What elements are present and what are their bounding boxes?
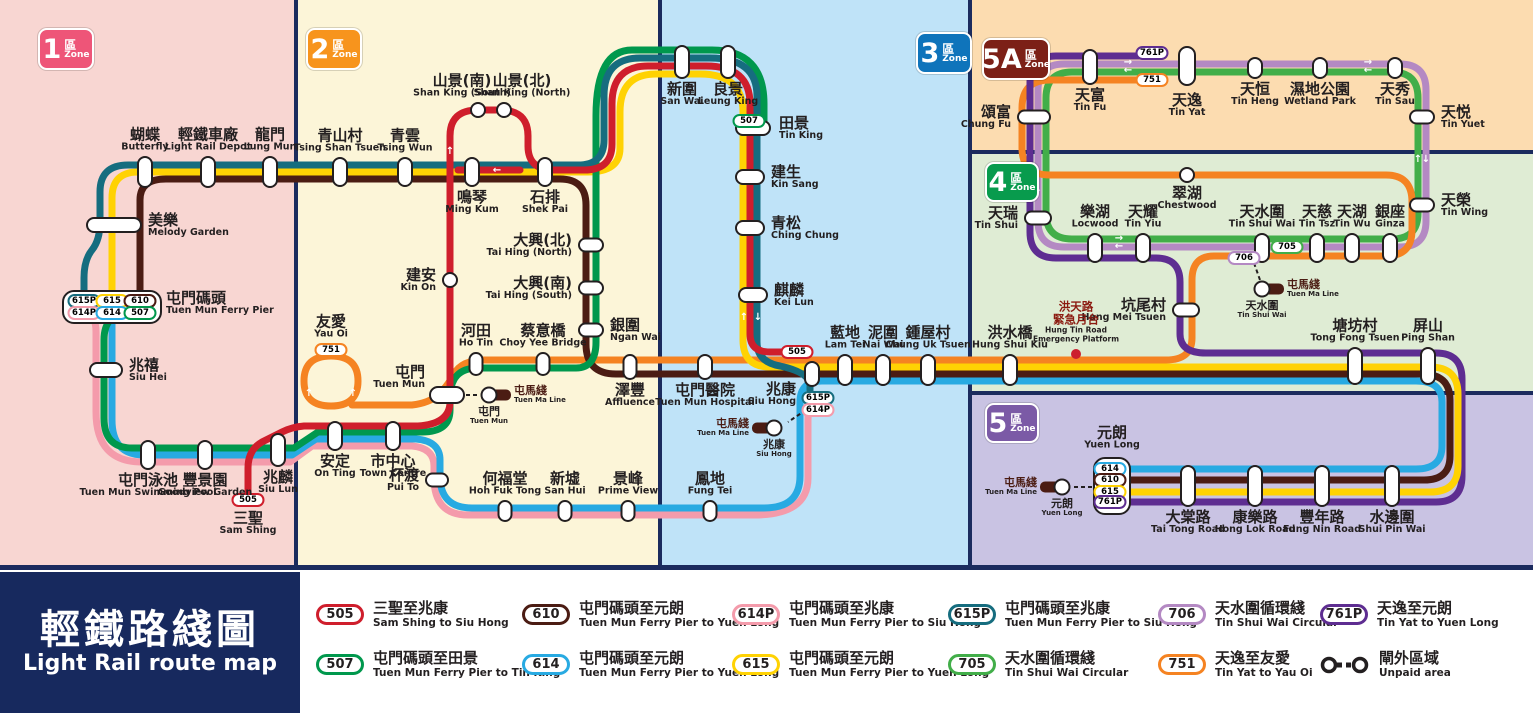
station-town-centre-marker xyxy=(385,421,401,451)
legend-route-751: 751 天逸至友愛Tin Yat to Yau Oi xyxy=(1158,650,1313,679)
station-tin-sau-label: 天秀Tin Sau xyxy=(1375,81,1415,107)
station-tuen-mun-label: 屯門Tuen Mun xyxy=(373,364,425,390)
map-title-zh: 輕鐵路綫圖 xyxy=(40,608,260,652)
station-siu-hei-label: 兆禧Siu Hei xyxy=(129,357,167,383)
station-ping-shan-label: 屏山Ping Shan xyxy=(1401,318,1455,344)
zone-5A-badge: 5A區Zone xyxy=(982,38,1050,80)
emergency-platform-label: 洪天路緊急月台Hung Tin RoadEmergency Platform xyxy=(1033,300,1119,344)
station-fung-nin-road-marker xyxy=(1314,465,1330,507)
station-tin-heng-label: 天恒Tin Heng xyxy=(1231,81,1279,107)
route-751-badge: 751 xyxy=(315,343,348,357)
station-wetland-park-marker xyxy=(1312,57,1328,79)
station-butterfly-marker xyxy=(137,156,153,188)
station-tin-tsz-marker xyxy=(1309,233,1325,263)
station-shui-pin-wai-label: 水邊圍Shui Pin Wai xyxy=(1358,509,1425,535)
station-chestwood-label: 翠湖Chestwood xyxy=(1157,185,1216,211)
route-507-badge: 507 xyxy=(733,114,766,128)
station-siu-hong-marker xyxy=(804,361,820,387)
station-ginza-label: 銀座Ginza xyxy=(1375,204,1405,230)
station-pui-to-marker xyxy=(425,473,449,488)
legend-badge-615: 615 xyxy=(732,654,780,675)
station-tin-heng-marker xyxy=(1247,57,1263,79)
station-locwood-marker xyxy=(1087,233,1103,263)
station-kei-lun-label: 麒麟Kei Lun xyxy=(774,282,814,308)
direction-arrow: ← xyxy=(1364,66,1372,76)
zone-4-badge: 4區Zone xyxy=(985,162,1039,202)
station-lam-tei-label: 藍地Lam Tei xyxy=(825,325,866,351)
station-san-wai-marker xyxy=(674,45,690,79)
station-siu-hong-label: 兆康Siu Hong xyxy=(748,381,796,407)
station-kei-lun-marker xyxy=(738,287,768,303)
legend-route-505: 505 三聖至兆康Sam Shing to Siu Hong xyxy=(316,600,509,629)
station-hoh-fuk-tong-marker xyxy=(498,500,513,522)
station-kin-sang-marker xyxy=(735,169,765,185)
legend-text-505: 三聖至兆康Sam Shing to Siu Hong xyxy=(373,600,509,629)
station-goodview-garden-label: 豐景園Goodview Garden xyxy=(158,472,253,498)
mtr-station-tuen-mun-label: 屯門Tuen Mun xyxy=(470,406,508,426)
station-light-rail-depot-marker xyxy=(200,156,216,188)
zone-2-badge: 2區Zone xyxy=(306,28,362,70)
legend-unpaid-area: 閘外區域Unpaid area xyxy=(1320,650,1451,679)
route-761P-badge: 761P xyxy=(1136,46,1169,60)
station-tin-yuet-label: 天悦Tin Yuet xyxy=(1441,104,1485,130)
station-tai-hing-north-label: 大興(北)Tai Hing (North) xyxy=(487,232,572,258)
station-chung-fu-label: 頌富Chung Fu xyxy=(961,104,1011,130)
station-tin-shui-wai-label: 天水圍Tin Shui Wai xyxy=(1229,204,1296,230)
direction-arrow: ← xyxy=(493,166,501,176)
legend-badge-751: 751 xyxy=(1158,654,1206,675)
station-tuen-mun-hospital-label: 屯門醫院Tuen Mun Hospital xyxy=(655,382,754,408)
station-tin-wu-label: 天湖Tin Wu xyxy=(1333,204,1370,230)
map-title-en: Light Rail route map xyxy=(23,652,277,676)
legend-route-761P: 761P 天逸至元朗Tin Yat to Yuen Long xyxy=(1320,600,1499,629)
station-on-ting-label: 安定On Ting xyxy=(314,453,355,479)
station-tuen-mun-swimming-pool-marker xyxy=(140,440,156,470)
zone-5-badge: 5區Zone xyxy=(985,403,1039,443)
tuen-ma-line-label: 屯馬綫Tuen Ma Line xyxy=(1287,279,1339,299)
tuen-ma-line-label: 屯馬綫Tuen Ma Line xyxy=(514,385,566,405)
station-light-rail-depot-label: 輕鐵車廠Light Rail Depot xyxy=(165,127,251,153)
direction-arrow: ← xyxy=(1124,66,1132,76)
station-tsing-shan-tsuen-marker xyxy=(332,157,348,187)
station-tin-wing-label: 天榮Tin Wing xyxy=(1441,192,1488,218)
route-761P-badge: 761P xyxy=(1094,495,1127,509)
station-sam-shing-label: 三聖Sam Shing xyxy=(220,510,277,536)
station-siu-hei-marker xyxy=(89,362,123,378)
station-choy-yee-bridge-marker xyxy=(536,352,551,376)
station-ming-kum-label: 鳴琴Ming Kum xyxy=(445,189,498,215)
direction-arrow: ↑ xyxy=(740,313,748,323)
station-melody-garden-marker xyxy=(86,217,142,233)
station-ngan-wai-label: 銀圍Ngan Wai xyxy=(610,317,661,343)
station-tin-shui-label: 天瑞Tin Shui xyxy=(975,205,1018,231)
station-tai-hing-south-label: 大興(南)Tai Hing (South) xyxy=(486,275,572,301)
direction-arrow: ↑ xyxy=(305,389,313,399)
direction-arrow: ↓ xyxy=(1422,155,1430,165)
station-tin-yat-label: 天逸Tin Yat xyxy=(1169,92,1206,118)
mtr-station-tin-shui-wai-label: 天水圍Tin Shui Wai xyxy=(1237,300,1286,320)
station-hung-shui-kiu-marker xyxy=(1002,354,1018,386)
station-tin-tsz-label: 天慈Tin Tsz xyxy=(1299,204,1335,230)
unpaid-area-icon xyxy=(1320,654,1370,676)
station-affluence-marker xyxy=(623,354,638,380)
mtr-interchange-icon xyxy=(766,420,783,437)
station-tin-yiu-label: 天耀Tin Yiu xyxy=(1125,204,1162,230)
direction-arrow: ↓ xyxy=(754,313,762,323)
station-prime-view-label: 景峰Prime View xyxy=(598,471,658,497)
station-shan-king-north-marker xyxy=(496,102,512,118)
legend-badge-505: 505 xyxy=(316,604,364,625)
route-505-badge: 505 xyxy=(781,345,814,359)
mtr-interchange-icon xyxy=(481,387,498,404)
station-butterfly-label: 蝴蝶Butterfly xyxy=(121,127,168,153)
station-shan-king-south-marker xyxy=(470,102,486,118)
station-kin-on-label: 建安Kin On xyxy=(400,267,436,293)
station-tin-fu-label: 天富Tin Fu xyxy=(1074,87,1107,113)
station-fung-nin-road-label: 豐年路Fung Nin Road xyxy=(1283,509,1361,535)
station-tong-fong-tsuen-label: 塘坊村Tong Fong Tsuen xyxy=(1311,318,1400,344)
station-wetland-park-label: 濕地公園Wetland Park xyxy=(1284,81,1356,107)
station-san-hui-marker xyxy=(558,500,573,522)
station-kin-sang-label: 建生Kin Sang xyxy=(771,164,819,190)
station-melody-garden-label: 美樂Melody Garden xyxy=(148,212,229,238)
legend-text-705: 天水圍循環綫Tin Shui Wai Circular xyxy=(1005,650,1128,679)
mtr-station-siu-hong-label: 兆康Siu Hong xyxy=(756,439,792,459)
map-title-block: 輕鐵路綫圖 Light Rail route map xyxy=(0,572,300,713)
station-shek-pai-label: 石排Shek Pai xyxy=(522,189,568,215)
station-shan-king-north-label: 山景(北)Shan King (North) xyxy=(474,73,571,99)
station-shui-pin-wai-marker xyxy=(1384,465,1400,507)
legend-text-751: 天逸至友愛Tin Yat to Yau Oi xyxy=(1215,650,1313,679)
station-ming-kum-marker xyxy=(464,157,480,187)
station-siu-lun-marker xyxy=(270,433,286,467)
legend-badge-610: 610 xyxy=(522,604,570,625)
light-rail-route-map: 1區Zone2區Zone3區Zone5A區Zone4區Zone5區Zone 蝴蝶… xyxy=(0,0,1533,713)
legend-route-706: 706 天水圍循環綫Tin Shui Wai Circular xyxy=(1158,600,1338,629)
legend-route-614P: 614P 屯門碼頭至兆康Tuen Mun Ferry Pier to Siu H… xyxy=(732,600,981,629)
route-705-badge: 705 xyxy=(1271,240,1304,254)
route-507-badge: 507 xyxy=(124,306,157,320)
station-tai-tong-road-marker xyxy=(1180,465,1196,507)
station-tsing-wun-label: 青雲Tsing Wun xyxy=(377,128,432,154)
station-tuen-mun-marker xyxy=(429,386,465,404)
station-tin-fu-marker xyxy=(1082,49,1098,85)
station-hong-lok-road-marker xyxy=(1247,465,1263,507)
station-tai-hing-south-marker xyxy=(578,281,604,296)
route-706-badge: 706 xyxy=(1228,251,1261,265)
route-751-badge: 751 xyxy=(1136,73,1169,87)
station-tuen-mun-hospital-marker xyxy=(697,354,713,380)
direction-arrow: ↑ xyxy=(349,389,357,399)
station-tong-fong-tsuen-marker xyxy=(1347,347,1363,385)
station-kin-on-marker xyxy=(442,272,458,288)
station-locwood-label: 樂湖Locwood xyxy=(1072,204,1119,230)
station-tin-wu-marker xyxy=(1344,233,1360,263)
station-on-ting-marker xyxy=(327,421,343,451)
station-ching-chung-marker xyxy=(735,220,765,236)
station-tin-yiu-marker xyxy=(1135,233,1151,263)
legend-badge-614P: 614P xyxy=(732,604,780,625)
legend-badge-706: 706 xyxy=(1158,604,1206,625)
route-614P-badge: 614P xyxy=(802,403,835,417)
station-tai-hing-north-marker xyxy=(578,238,604,253)
station-hang-mei-tsuen-marker xyxy=(1172,303,1200,318)
station-ho-tin-label: 河田Ho Tin xyxy=(459,323,493,349)
legend-badge-705: 705 xyxy=(948,654,996,675)
station-fung-tei-marker xyxy=(703,500,718,522)
legend-text-761P: 天逸至元朗Tin Yat to Yuen Long xyxy=(1377,600,1499,629)
legend-badge-614: 614 xyxy=(522,654,570,675)
station-siu-lun-label: 兆麟Siu Lun xyxy=(258,469,298,495)
direction-arrow: ↑ xyxy=(446,147,454,157)
station-affluence-label: 澤豐Affluence xyxy=(605,382,655,408)
station-chung-fu-marker xyxy=(1017,110,1051,125)
station-lung-mun-label: 龍門Lung Mun xyxy=(244,127,297,153)
station-leung-king-marker xyxy=(720,45,736,79)
mtr-interchange-icon xyxy=(1254,281,1271,298)
station-tin-king-label: 田景Tin King xyxy=(779,115,823,141)
station-ping-shan-marker xyxy=(1420,347,1436,385)
station-ho-tin-marker xyxy=(469,352,484,376)
legend-badge-507: 507 xyxy=(316,654,364,675)
station-choy-yee-bridge-label: 蔡意橋Choy Yee Bridge xyxy=(499,323,586,349)
station-shek-pai-marker xyxy=(537,157,553,187)
station-pui-to-label: 杯渡Pui To xyxy=(387,467,419,493)
station-tin-sau-marker xyxy=(1387,57,1403,79)
station-tin-yat-marker xyxy=(1178,46,1196,86)
tuen-ma-line-label: 屯馬綫Tuen Ma Line xyxy=(985,477,1037,497)
station-lung-mun-marker xyxy=(262,156,278,188)
tuen-ma-line-label: 屯馬綫Tuen Ma Line xyxy=(697,418,749,438)
station-tuen-mun-ferry-pier-label: 屯門碼頭Tuen Mun Ferry Pier xyxy=(166,290,274,316)
station-leung-king-label: 良景Leung King xyxy=(698,81,758,107)
station-san-hui-label: 新墟San Hui xyxy=(544,471,585,497)
station-nai-wai-marker xyxy=(875,354,891,386)
mtr-station-yuen-long-label: 元朗Yuen Long xyxy=(1042,498,1083,518)
station-fung-tei-label: 鳳地Fung Tei xyxy=(688,471,733,497)
station-prime-view-marker xyxy=(621,500,636,522)
zone-1-badge: 1區Zone xyxy=(38,28,94,70)
station-lam-tei-marker xyxy=(837,354,853,386)
zone-3-badge: 3區Zone xyxy=(916,32,972,74)
station-hoh-fuk-tong-label: 何福堂Hoh Fuk Tong xyxy=(469,471,541,497)
station-tin-wing-marker xyxy=(1409,198,1435,213)
legend-badge-615P: 615P xyxy=(948,604,996,625)
station-goodview-garden-marker xyxy=(197,440,213,470)
emergency-platform-dot xyxy=(1071,349,1081,359)
station-yau-oi-label: 友愛Yau Oi xyxy=(314,314,348,340)
station-chestwood-marker xyxy=(1179,167,1195,183)
station-chung-uk-tsuen-label: 鍾屋村Chung Uk Tsuen xyxy=(885,325,971,351)
station-tin-shui-marker xyxy=(1024,211,1052,226)
station-tsing-shan-tsuen-label: 青山村Tsing Shan Tsuen xyxy=(294,128,386,154)
station-tin-yuet-marker xyxy=(1409,110,1435,125)
legend-route-705: 705 天水圍循環綫Tin Shui Wai Circular xyxy=(948,650,1128,679)
mtr-interchange-icon xyxy=(1054,479,1071,496)
interchange-connector-line xyxy=(1254,263,1260,280)
station-yuen-long-label: 元朗Yuen Long xyxy=(1084,425,1140,451)
legend-text-unpaid: 閘外區域Unpaid area xyxy=(1379,650,1451,679)
station-ginza-marker xyxy=(1382,233,1398,263)
station-tsing-wun-marker xyxy=(397,157,413,187)
station-ching-chung-label: 青松Ching Chung xyxy=(771,215,839,241)
direction-arrow: ← xyxy=(1115,242,1123,252)
legend-badge-761P: 761P xyxy=(1320,604,1368,625)
station-chung-uk-tsuen-marker xyxy=(920,354,936,386)
